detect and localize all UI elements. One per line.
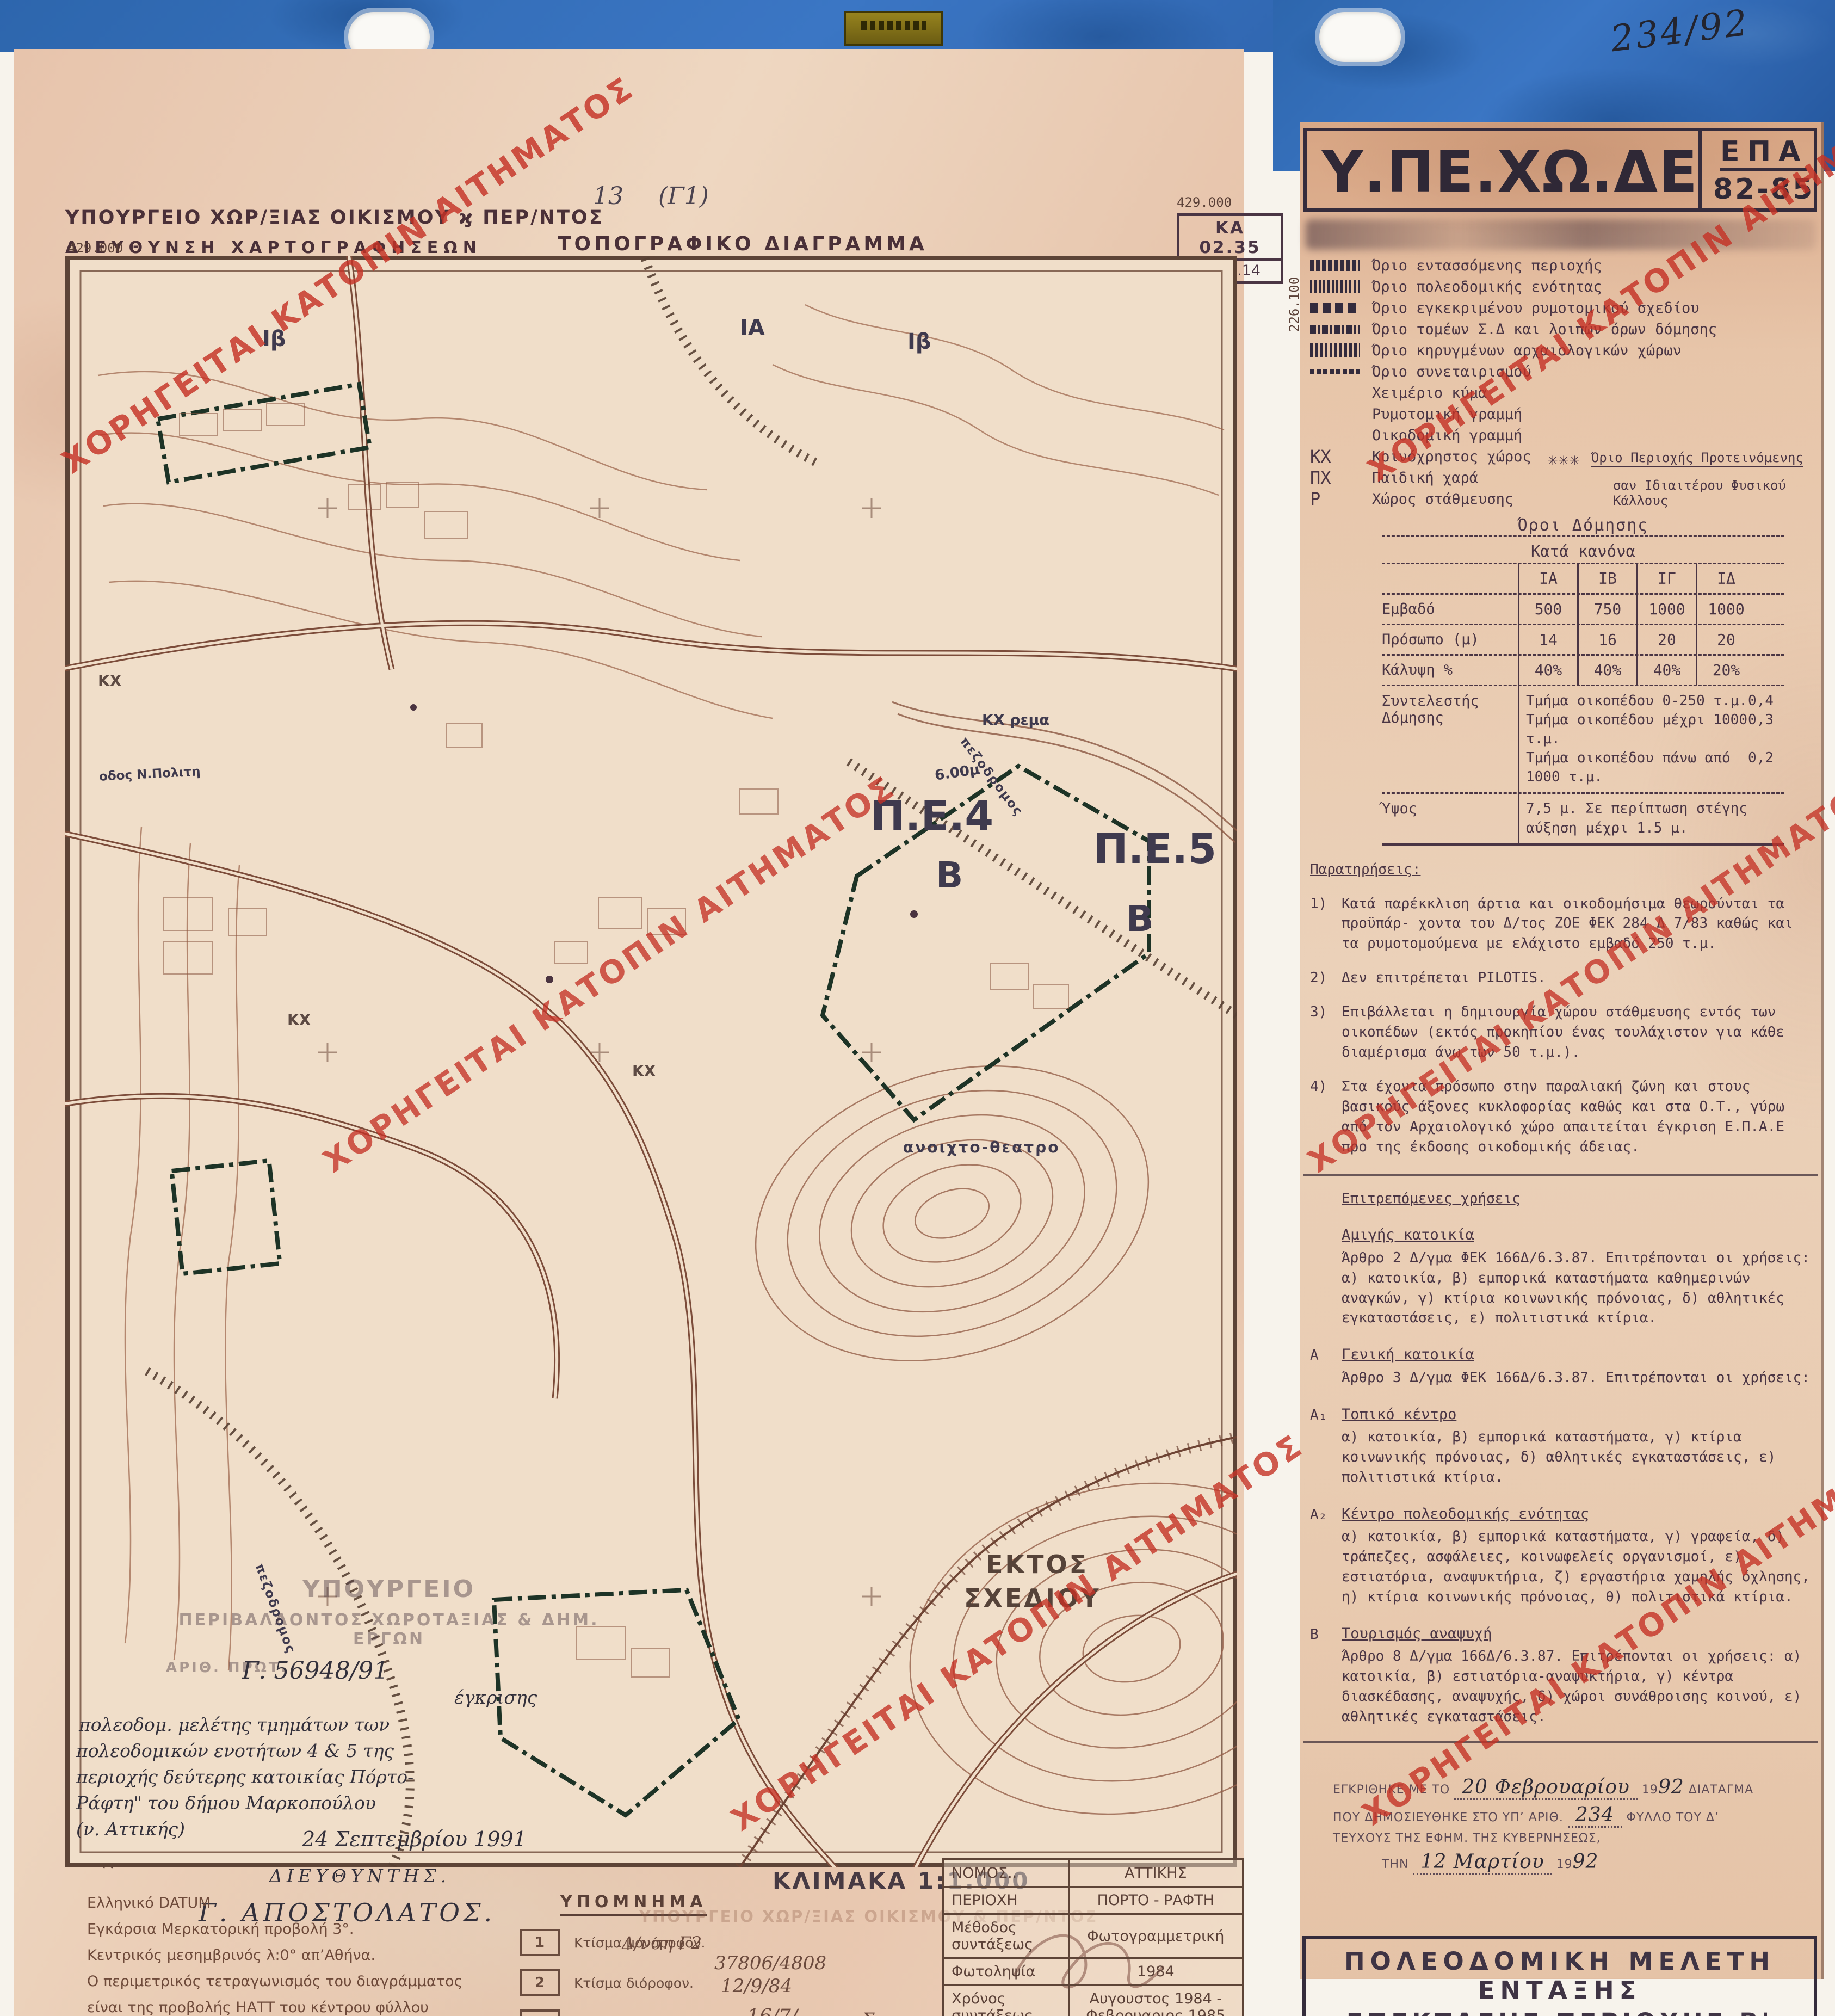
uses-sec-tourismos: ΒΤουρισμός αναψυχήΆρθρο 8 Δ/γμα 166Δ/6.3… — [1310, 1624, 1811, 1727]
faint-stamp-line3: ΑΡΙΘ. ΠΡΩΤ. — [144, 1660, 634, 1676]
stars-line2: σαν Ιδιαιτέρου Φυσικού Κάλλους — [1613, 478, 1821, 508]
approval-date: 24 Σεπτεμβρίου 1991 — [302, 1827, 527, 1851]
legend-item-1: Όριο εντασσόμενης περιοχής — [1310, 258, 1811, 273]
bt-row-area: Εμβαδό 500 750 1000 1000 — [1382, 595, 1784, 625]
legend-symbol-1: 1 — [520, 1929, 560, 1956]
gazette-line-2: ΠΟΥ ΔΗΜΟΣΙΕΥΘΗΚΕ ΣΤΟ ΥΠ’ ΑΡΙΘ. 234 ΦΥΛΛΟ… — [1333, 1804, 1811, 1826]
coord-top-right2: 429.000 — [1177, 195, 1232, 210]
note-text: Στα έχοντα πρόσωπο στην παραλιακή ζώνη κ… — [1342, 1077, 1811, 1157]
approval-line-1: έγκρισης — [454, 1687, 537, 1708]
bt-value: 14 — [1518, 625, 1577, 654]
legend-item-8: Ρυμοτομική γραμμή — [1310, 407, 1811, 421]
legend-item-9: Οικοδομική γραμμή — [1310, 428, 1811, 442]
boundary-symbol-2 — [1310, 280, 1360, 293]
datum-line-2: Εγκάρσια Μερκατορική προβολή 3°. — [87, 1921, 462, 1938]
sheet-code-top: ΚΑ 02.35 — [1179, 216, 1281, 261]
info-value: Αυγουστος 1984 - Φεβρουαριος 1985 — [1068, 1986, 1243, 2016]
epa-badge: ΕΠΑ 82-85 — [1698, 131, 1826, 208]
margin-note-3: 12/9/84 — [721, 1975, 792, 1997]
bt-value: 20% — [1696, 656, 1755, 685]
epa-years: 82-85 — [1702, 171, 1826, 206]
boundary-symbol-1 — [1310, 260, 1360, 271]
info-row-photo: Φωτοληψία1984 — [943, 1958, 1243, 1986]
bt-sd-line-2: Τμήμα οικοπέδου μέχρι 1000 τ.μ.0,3 — [1526, 711, 1784, 749]
uses-body: Άρθρο 8 Δ/γμα 166Δ/6.3.87. Επιτρέπονται … — [1342, 1647, 1811, 1727]
study-block: ΠΟΛΕΟΔΟΜΙΚΗ ΜΕΛΕΤΗ ΕΝΤΑΞΗΣ ΕΠΕΚΤΑΣΗΣ ΠΕΡ… — [1302, 1936, 1817, 2016]
map-legend-item-2: 2 Κτίσμα διόροφον. — [520, 1969, 707, 1996]
label-kx-1: ΚΧ — [98, 672, 121, 690]
uses-head: Τοπικό κέντρο — [1342, 1406, 1456, 1423]
uses-body: Άρθρο 3 Δ/γμα ΦΕΚ 166Δ/6.3.87. Επιτρέπον… — [1342, 1368, 1810, 1388]
agency-header: Υ.ΠΕ.ΧΩ.ΔΕ ΕΠΑ 82-85 — [1303, 128, 1817, 212]
bt-row-coverage: Κάλυψη % 40% 40% 40% 20% — [1382, 656, 1784, 686]
section-divider-2 — [1303, 1741, 1818, 1743]
label-kx-rema: ΚΧ ρεμα — [982, 712, 1049, 729]
info-row-time: Χρόνος συντάξεωςΑυγουστος 1984 - Φεβρουα… — [943, 1986, 1243, 2016]
bt-value: 40% — [1518, 656, 1577, 685]
gazette-publish-date: 12 Μαρτίου — [1413, 1851, 1552, 1875]
note-text: Κατά παρέκκλιση άρτια και οικοδομήσιμα θ… — [1342, 894, 1811, 954]
coord-top-left: 429.000 — [68, 241, 123, 256]
bt-col-4: ΙΔ — [1696, 564, 1755, 593]
legend-text: Παιδική χαρά — [1372, 470, 1478, 486]
uses-sec-geniki: ΑΓενική κατοικίαΆρθρο 3 Δ/γμα ΦΕΚ 166Δ/6… — [1310, 1345, 1811, 1388]
datum-line-5: είναι της προβολής ΗΑΤΤ του κέντρου φύλλ… — [87, 1999, 462, 2016]
legend-sheet: Υ.ΠΕ.ΧΩ.ΔΕ ΕΠΑ 82-85 Όριο εντασσόμενης π… — [1300, 122, 1824, 1979]
legend-text: Ρυμοτομική γραμμή — [1372, 406, 1522, 423]
legend-item-2: Όριο πολεοδομικής ενότητας — [1310, 280, 1811, 294]
sheet-info-table: ΝΟΜΟΣ..ΑΤΤΙΚΗΣ ΠΕΡΙΟΧΗΠΟΡΤΟ - ΡΑΦΤΗ Μέθο… — [942, 1858, 1244, 2016]
special-boundary-note: ✳✳✳ Όριο Περιοχής Προτεινόμενης σαν Ιδια… — [1548, 450, 1821, 508]
coord-top-right-vertical: 226.100 — [1287, 277, 1302, 332]
map-title: ΤΟΠΟΓΡΑΦΙΚΟ ΔΙΑΓΡΑΜΜΑ — [558, 233, 928, 255]
section-label-ib1: Ιβ — [262, 326, 286, 352]
legend-text: Οικοδομική γραμμή — [1372, 427, 1522, 444]
legend-item-5: Όριο κηρυγμένων αρχαιολογικών χώρων — [1310, 343, 1811, 357]
gazette-publish-year: 92 — [1573, 1851, 1599, 1873]
legend-text: Όριο τομέων Σ.Δ και λοιπών όρων δόμησης — [1372, 321, 1717, 338]
bt-row-sd: Συντελεστής Δόμησης Τμήμα οικοπέδου 0-25… — [1382, 686, 1784, 794]
bt-height-label: Ύψος — [1382, 794, 1518, 843]
info-row-method: Μέθοδος συντάξεωςΦωτογραμμετρική — [943, 1914, 1243, 1958]
building-terms-group: Κατά κανόνα — [1382, 542, 1784, 560]
uses-title: Επιτρεπόμενες χρήσεις — [1342, 1189, 1811, 1209]
datum-notes: Ελληνικό DATUM Εγκάρσια Μερκατορική προβ… — [87, 1895, 462, 2016]
info-value: ΠΟΡΤΟ - ΡΑΦΤΗ — [1068, 1887, 1243, 1914]
legend-item-3: Όριο εγκεκριμένου ρυμοτομικού σχεδίου — [1310, 301, 1811, 315]
scanned-map-document: 234/92 ΥΠΟΥΡΓΕΙΟ ΧΩΡ/ΞΙΑΣ ΟΙΚΙΣΜΟΥ ϗ ΠΕΡ… — [0, 0, 1835, 2016]
note-item-2: 2)Δεν επιτρέπεται PILOTIS. — [1310, 968, 1811, 988]
section-label-ib2: Ιβ — [907, 329, 931, 354]
bt-row-label: Κάλυψη % — [1382, 656, 1518, 684]
note-item-4: 4)Στα έχοντα πρόσωπο στην παραλιακή ζώνη… — [1310, 1077, 1811, 1157]
notes-section: Παρατηρήσεις: 1)Κατά παρέκκλιση άρτια κα… — [1300, 860, 1821, 1157]
legend-abbr: ΠΧ — [1310, 467, 1360, 488]
approval-line-6: (ν. Αττικής) — [76, 1818, 185, 1840]
legend-item-4: Όριο τομέων Σ.Δ και λοιπών όρων δόμησης — [1310, 322, 1811, 336]
faint-stamp-line1: ΥΠΟΥΡΓΕΙΟ — [144, 1575, 634, 1603]
bt-sd-line-1: Τμήμα οικοπέδου 0-250 τ.μ.0,4 — [1526, 692, 1784, 711]
uses-body: Άρθρο 2 Δ/γμα ΦΕΚ 166Δ/6.3.87. Επιτρέπον… — [1342, 1248, 1811, 1329]
info-label: ΝΟΜΟΣ.. — [943, 1859, 1068, 1887]
zone-label-pe5: Π.Ε.5 — [1093, 824, 1216, 873]
boundary-symbol-5 — [1310, 343, 1360, 357]
note-item-1: 1)Κατά παρέκκλιση άρτια και οικοδομήσιμα… — [1310, 894, 1811, 954]
datum-line-3: Κεντρικός μεσημβρινός λ:0° απ’Αθήνα. — [87, 1947, 462, 1964]
info-label: Φωτοληψία — [943, 1958, 1068, 1986]
notes-title: Παρατηρήσεις: — [1310, 860, 1811, 880]
bt-value: 1000 — [1636, 595, 1696, 624]
datum-line-4: Ο περιμετρικός τετραγωνισμός του διαγράμ… — [87, 1973, 462, 1990]
info-value: ΑΤΤΙΚΗΣ — [1068, 1859, 1243, 1887]
info-label: Μέθοδος συντάξεως — [943, 1914, 1068, 1958]
uses-section: Επιτρεπόμενες χρήσεις Αμιγής κατοικίαΆρθ… — [1300, 1189, 1821, 1727]
datum-line-1: Ελληνικό DATUM — [87, 1895, 462, 1912]
note-text: Δεν επιτρέπεται PILOTIS. — [1342, 968, 1546, 988]
info-value: Φωτογραμμετρική — [1068, 1914, 1243, 1958]
boundary-symbol-4 — [1310, 325, 1360, 334]
info-row-periochi: ΠΕΡΙΟΧΗΠΟΡΤΟ - ΡΑΦΤΗ — [943, 1887, 1243, 1914]
uses-head: Κέντρο πολεοδομικής ενότητας — [1342, 1506, 1589, 1522]
epa-label: ΕΠΑ — [1720, 131, 1807, 171]
bt-value: 500 — [1518, 595, 1577, 624]
gazette-decree-year: 92 — [1658, 1776, 1684, 1798]
building-terms-table: Όροι Δόμησης Κατά κανόνα ΙΑ ΙΒ ΙΓ ΙΔ Εμβ… — [1382, 516, 1784, 846]
legend-text: Όριο εντασσόμενης περιοχής — [1372, 257, 1602, 274]
uses-head: Τουρισμός αναψυχή — [1342, 1625, 1492, 1642]
approval-line-3: πολεοδομικών ενοτήτων 4 & 5 της — [76, 1740, 394, 1761]
study-title-2: ΕΠΕΚΤΑΣΗΣ ΠΕΡΙΟΧΗΣ Β' ΚΑΤΟΙΚΙΑΣ — [1306, 2005, 1814, 2016]
info-row-nomos: ΝΟΜΟΣ..ΑΤΤΙΚΗΣ — [943, 1859, 1243, 1887]
gazette-decree-date: 20 Φεβρουαρίου — [1454, 1776, 1638, 1800]
uses-sec-amigis: Αμιγής κατοικίαΆρθρο 2 Δ/γμα ΦΕΚ 166Δ/6.… — [1310, 1225, 1811, 1328]
bt-value: 40% — [1577, 656, 1636, 685]
bt-value: 750 — [1577, 595, 1636, 624]
bt-sd-line-3: Τμήμα οικοπέδου πάνω από 1000 τ.μ.0,2 — [1526, 749, 1784, 787]
legend-item-6: Όριο συνεταιρισμού — [1310, 365, 1811, 379]
zone-label-pe5-b: Β — [1126, 898, 1153, 940]
punch-hole-right — [1319, 12, 1401, 62]
legend-text: Χώρος στάθμευσης — [1372, 491, 1513, 508]
margin-note-5: Σ — [862, 2009, 875, 2016]
legend-text: Όριο πολεοδομικής ενότητας — [1372, 279, 1602, 295]
bt-row-height: Ύψος 7,5 μ. Σε περίπτωση στέγης αύξηση μ… — [1382, 794, 1784, 845]
bt-row-label: Εμβαδό — [1382, 595, 1518, 623]
gazette-stamp: ΕΓΚΡΙΘΗΚΕ ΜΕ ΤΟ 20 Φεβρουαρίου 1992 ΔΙΑΤ… — [1300, 1776, 1821, 1873]
uses-body: α) κατοικία, β) εμπορικά καταστήματα, γ)… — [1342, 1527, 1811, 1607]
section-divider — [1303, 1174, 1818, 1176]
note-item-3: 3)Επιβάλλεται η δημιουργία χώρου στάθμευ… — [1310, 1002, 1811, 1063]
bt-row-label: Πρόσωπο (μ) — [1382, 626, 1518, 653]
info-label: ΠΕΡΙΟΧΗ — [943, 1887, 1068, 1914]
sheet-note-handwritten: 13 (Γ1) — [593, 182, 709, 210]
gazette-line-4: ΤΗΝ 12 Μαρτίου 1992 — [1333, 1851, 1811, 1873]
legend-item-7: Χειμέριο κύμα — [1310, 386, 1811, 400]
margin-note-4: 16/7/ — [747, 2006, 798, 2016]
agency-name: Υ.ΠΕ.ΧΩ.ΔΕ — [1307, 131, 1698, 208]
approval-line-2: πολεοδομ. μελέτης τμημάτων των — [79, 1714, 390, 1735]
bt-value: 40% — [1636, 656, 1696, 685]
note-text: Επιβάλλεται η δημιουργία χώρου στάθμευση… — [1342, 1002, 1811, 1063]
uses-head: Αμιγής κατοικία — [1342, 1226, 1474, 1243]
legend-symbol-3: Π — [520, 2009, 560, 2016]
approval-line-5: Ράφτη" του δήμου Μαρκοπούλου — [76, 1792, 376, 1814]
bt-col-3: ΙΓ — [1636, 564, 1696, 593]
stars-line1: Όριο Περιοχής Προτεινόμενης — [1591, 450, 1803, 467]
faint-stamp-line2: ΠΕΡΙΒΑΛΛΟΝΤΟΣ ΧΩΡΟΤΑΞΙΑΣ & ΔΗΜ. ΕΡΓΩΝ — [144, 1611, 634, 1649]
stars-symbol: ✳✳✳ — [1548, 450, 1580, 469]
label-theatre: ανοιχτο-θεατρο — [903, 1138, 1060, 1156]
legend-text: Όριο κηρυγμένων αρχαιολογικών χώρων — [1372, 342, 1682, 359]
legend-text: Κοινόχρηστος χώρος — [1372, 448, 1531, 465]
label-kx-3: ΚΧ — [632, 1062, 656, 1080]
bt-row-frontage: Πρόσωπο (μ) 14 16 20 20 — [1382, 625, 1784, 656]
bt-value: 20 — [1696, 625, 1755, 654]
uses-body: α) κατοικία, β) εμπορικά καταστήματα, γ)… — [1342, 1427, 1811, 1488]
boundary-legend: Όριο εντασσόμενης περιοχής Όριο πολεοδομ… — [1300, 258, 1821, 506]
uses-head: Γενική κατοικία — [1342, 1346, 1474, 1363]
approval-ref-number: Γ. 56948/91 — [242, 1657, 388, 1685]
zone-label-pe4-b: Β — [936, 854, 963, 896]
map-legend-item-3: Π Πολυόροφον. — [520, 2009, 707, 2016]
building-terms-title: Όροι Δόμησης — [1382, 516, 1784, 535]
legend-abbr: ΚΧ — [1310, 446, 1360, 467]
legend-label-2: Κτίσμα διόροφον. — [574, 1975, 694, 1991]
bt-header-row: ΙΑ ΙΒ ΙΓ ΙΔ — [1382, 563, 1784, 595]
legend-symbol-2: 2 — [520, 1969, 560, 1996]
label-ektos-1: ΕΚΤΟΣ — [986, 1550, 1089, 1579]
bt-col-2: ΙΒ — [1577, 564, 1636, 593]
legend-abbr: Ρ — [1310, 489, 1360, 509]
approval-role: ΔΙΕΥΘΥΝΤΗΣ. — [269, 1865, 450, 1886]
zone-label-pe4: Π.Ε.4 — [870, 792, 993, 840]
map-sheet: ΥΠΟΥΡΓΕΙΟ ΧΩΡ/ΞΙΑΣ ΟΙΚΙΣΜΟΥ ϗ ΠΕΡ/ΝΤΟΣ Δ… — [14, 49, 1244, 2016]
uses-sec-topiko: Α₁Τοπικό κέντροα) κατοικία, β) εμπορικά … — [1310, 1404, 1811, 1488]
gazette-line-1: ΕΓΚΡΙΘΗΚΕ ΜΕ ΤΟ 20 Φεβρουαρίου 1992 ΔΙΑΤ… — [1333, 1776, 1811, 1798]
info-value: 1984 — [1068, 1958, 1243, 1986]
gazette-issue-number: 234 — [1568, 1804, 1622, 1828]
study-title-1: ΠΟΛΕΟΔΟΜΙΚΗ ΜΕΛΕΤΗ ΕΝΤΑΞΗΣ — [1306, 1939, 1814, 2005]
bt-height-value: 7,5 μ. Σε περίπτωση στέγης αύξηση μέχρι … — [1526, 799, 1784, 837]
label-kx-2: ΚΧ — [287, 1011, 311, 1029]
bt-value: 16 — [1577, 625, 1636, 654]
boundary-symbol-3 — [1310, 303, 1360, 313]
boundary-symbol-6 — [1310, 369, 1360, 374]
bt-value: 1000 — [1696, 595, 1755, 624]
uses-sec-kentro: Α₂Κέντρο πολεοδομικής ενότηταςα) κατοικί… — [1310, 1504, 1811, 1607]
gold-sticker — [844, 11, 943, 46]
legend-text: Όριο εγκεκριμένου ρυμοτομικού σχεδίου — [1372, 300, 1699, 317]
ministry-line1: ΥΠΟΥΡΓΕΙΟ ΧΩΡ/ΞΙΑΣ ΟΙΚΙΣΜΟΥ ϗ ΠΕΡ/ΝΤΟΣ — [65, 207, 604, 229]
bt-sd-label: Συντελεστής Δόμησης — [1382, 686, 1518, 792]
info-label: Χρόνος συντάξεως — [943, 1986, 1068, 2016]
approval-line-4: περιοχής δεύτερης κατοικίας Πόρτο- — [76, 1766, 413, 1787]
ink-smudge — [1306, 219, 1816, 250]
legend-text: Όριο συνεταιρισμού — [1372, 363, 1531, 380]
legend-text: Χειμέριο κύμα — [1372, 385, 1487, 402]
approval-stamp-faint: ΥΠΟΥΡΓΕΙΟ ΠΕΡΙΒΑΛΛΟΝΤΟΣ ΧΩΡΟΤΑΞΙΑΣ & ΔΗΜ… — [144, 1575, 634, 1676]
bt-value: 20 — [1636, 625, 1696, 654]
ministry-line2: ΔΙΕΥΘΥΝΣΗ ΧΑΡΤΟΓΡΑΦΗΣΕΩΝ — [65, 238, 482, 257]
margin-note-1: Δ/νση Γ2 — [622, 1933, 702, 1953]
gazette-line-3: ΤΕΥΧΟΥΣ ΤΗΣ ΕΦΗΜ. ΤΗΣ ΚΥΒΕΡΝΗΣΕΩΣ, — [1333, 1832, 1811, 1845]
label-ektos-2: ΣΧΕΔΙΟΥ — [964, 1583, 1101, 1613]
section-label-ia: ΙΑ — [740, 316, 765, 341]
bt-col-1: ΙΑ — [1518, 564, 1577, 593]
margin-note-2: 37806/4808 — [714, 1952, 826, 1974]
